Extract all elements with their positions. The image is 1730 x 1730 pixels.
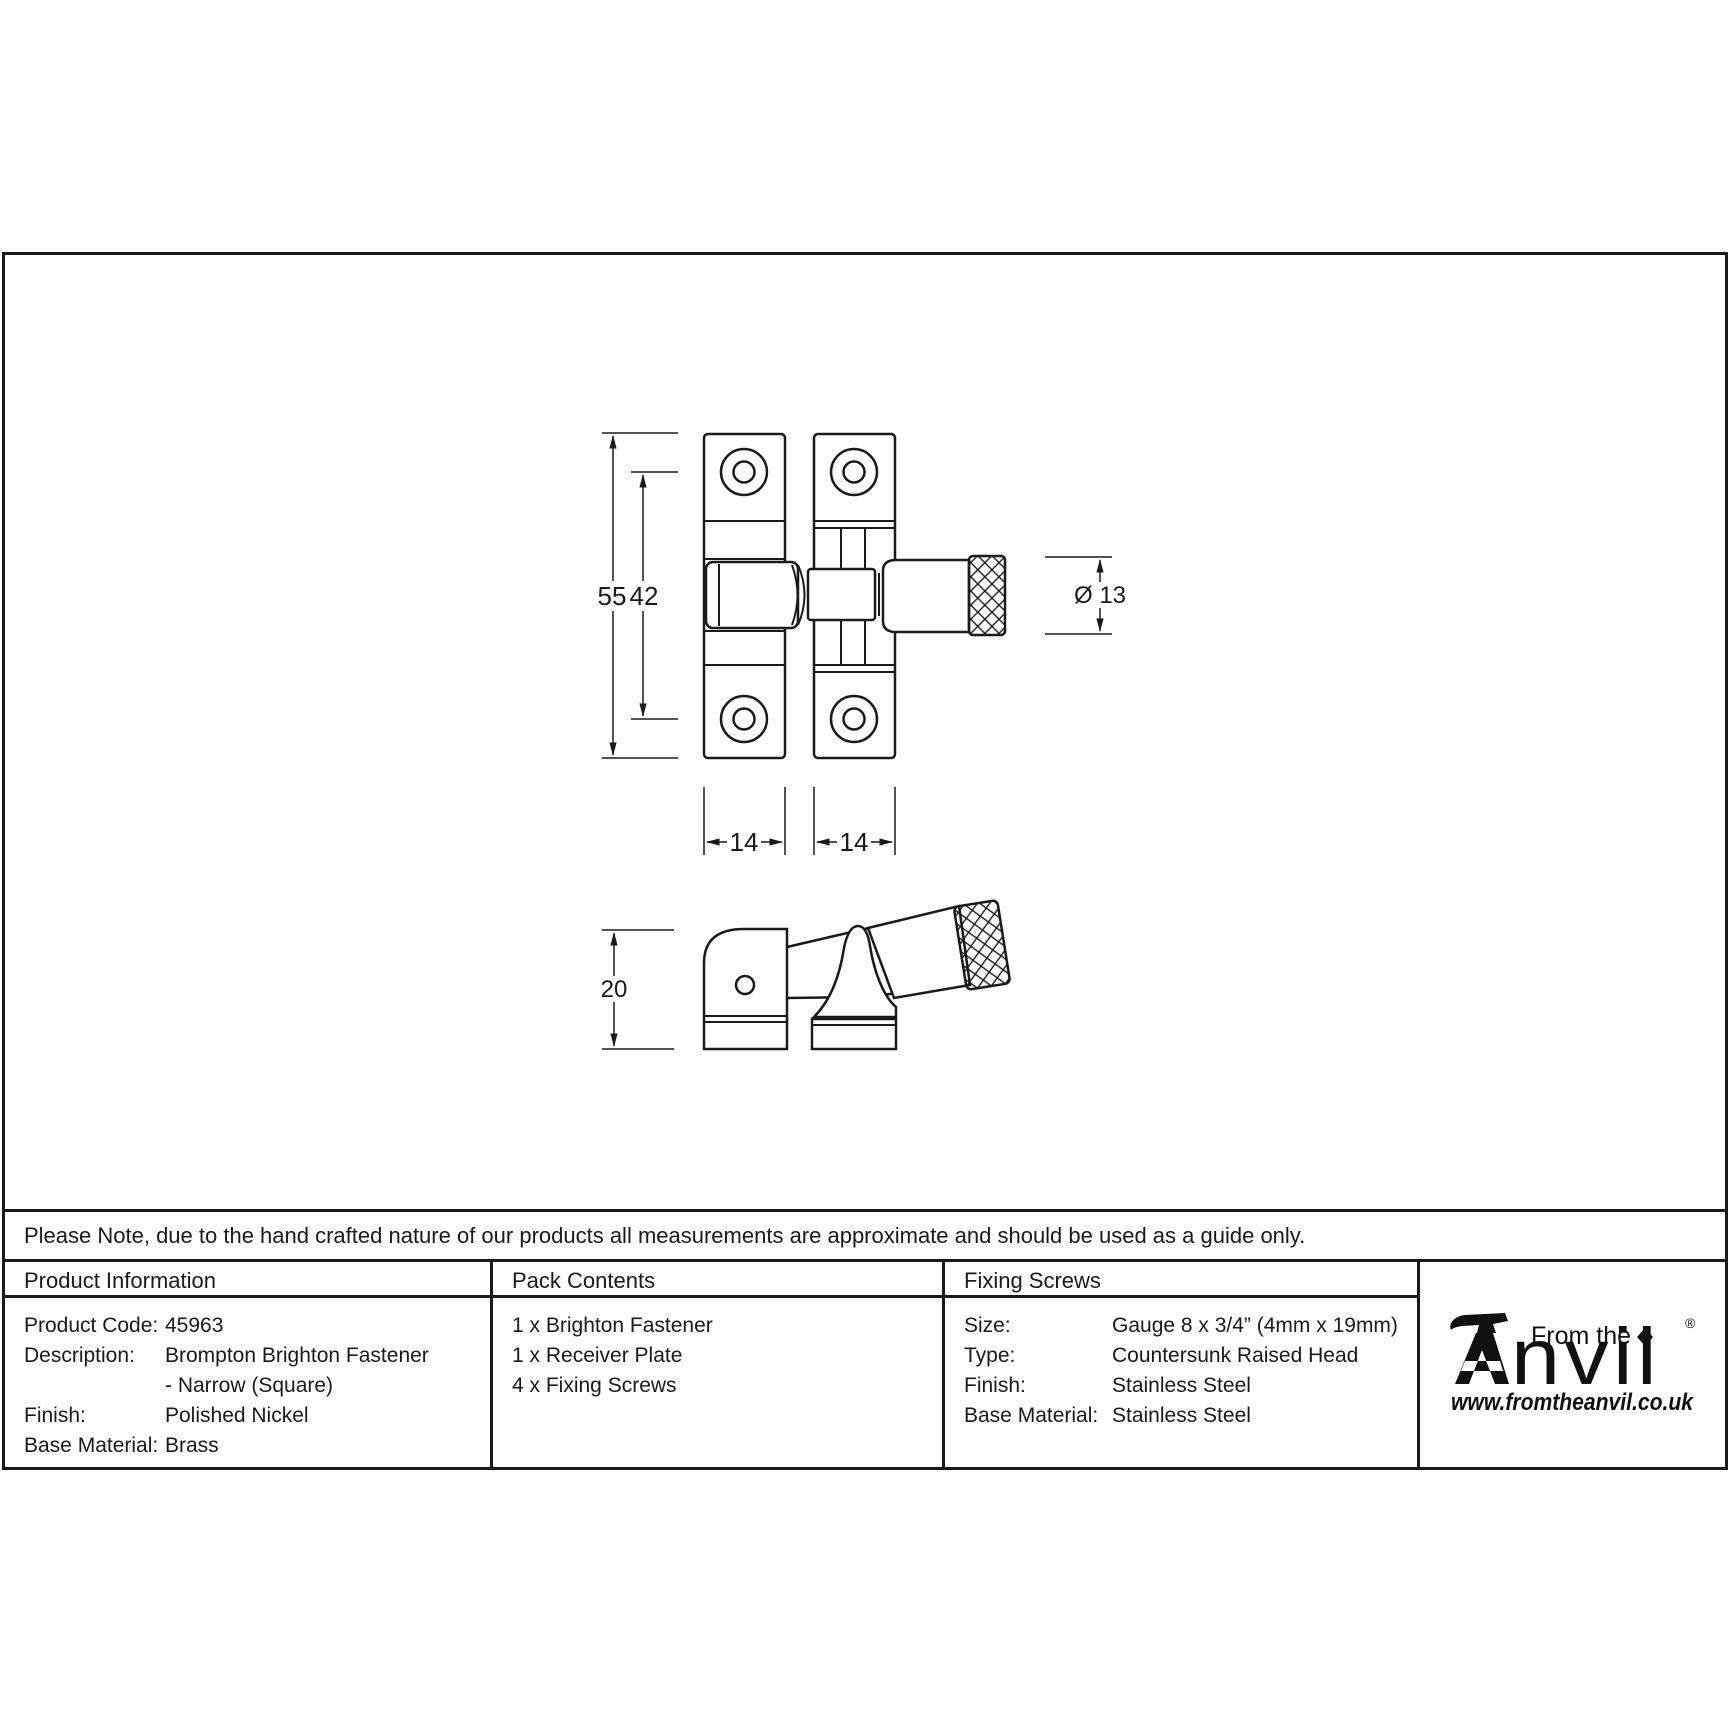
row-label: Finish: <box>964 1371 1112 1401</box>
row-label: Description: <box>24 1341 165 1371</box>
table-row: Type: Countersunk Raised Head <box>964 1341 1417 1371</box>
fixing-screws-column: Fixing Screws Size: Gauge 8 x 3/4” (4mm … <box>945 1262 1420 1467</box>
row-label: Base Material: <box>964 1401 1112 1431</box>
dim-knob-diameter: Ø 13 <box>1074 582 1126 609</box>
row-value: Polished Nickel <box>165 1401 490 1431</box>
technical-drawing-area: 55 42 14 14 Ø 13 20 <box>5 255 1725 1209</box>
slider-block <box>808 569 875 620</box>
dim-right-plate-width: 14 <box>840 827 869 857</box>
side-view <box>704 900 1010 1049</box>
dim-hole-spacing: 42 <box>630 581 659 611</box>
table-row: Base Material: Brass <box>24 1431 490 1461</box>
row-value: 45963 <box>165 1311 490 1341</box>
product-information-column: Product Information Product Code: 45963 … <box>5 1262 493 1467</box>
logo-registered-mark: ® <box>1685 1315 1696 1331</box>
pack-item: 1 x Receiver Plate <box>512 1341 942 1371</box>
pack-item: 4 x Fixing Screws <box>512 1371 942 1401</box>
row-value: Stainless Steel <box>1112 1371 1417 1401</box>
fixing-screws-header: Fixing Screws <box>945 1262 1417 1298</box>
row-value: Stainless Steel <box>1112 1401 1417 1431</box>
table-row: Product Code: 45963 <box>24 1311 490 1341</box>
row-label: Size: <box>964 1311 1112 1341</box>
row-label: Type: <box>964 1341 1112 1371</box>
measurement-note-text: Please Note, due to the hand crafted nat… <box>24 1223 1305 1249</box>
receiver-plate-side <box>704 929 787 1049</box>
row-value: Gauge 8 x 3/4” (4mm x 19mm) <box>1112 1311 1417 1341</box>
pack-item: 1 x Brighton Fastener <box>512 1311 942 1341</box>
product-information-header: Product Information <box>5 1262 490 1298</box>
dim-side-height: 20 <box>601 976 628 1003</box>
drawing-sheet-frame: 55 42 14 14 Ø 13 20 Please Note, due to … <box>2 252 1728 1470</box>
table-row: Finish: Stainless Steel <box>964 1371 1417 1401</box>
dim-total-height: 55 <box>598 581 627 611</box>
row-label <box>24 1371 165 1401</box>
from-the-anvil-logo: nvil From the ® www.fromtheanvil.co.uk <box>1443 1310 1703 1420</box>
logo-from-the-text: From the <box>1531 1322 1631 1350</box>
fastener-technical-drawing: 55 42 14 14 Ø 13 20 <box>5 255 1723 1209</box>
row-value: Brompton Brighton Fastener <box>165 1341 490 1371</box>
specification-table: Product Information Product Code: 45963 … <box>5 1259 1725 1467</box>
spec-sheet-page: 55 42 14 14 Ø 13 20 Please Note, due to … <box>0 0 1730 1730</box>
row-value: Countersunk Raised Head <box>1112 1341 1417 1371</box>
dim-left-plate-width: 14 <box>730 827 759 857</box>
table-row: Description: Brompton Brighton Fastener <box>24 1341 490 1371</box>
anvil-icon <box>1450 1313 1509 1384</box>
row-value: - Narrow (Square) <box>165 1371 490 1401</box>
row-value: Brass <box>165 1431 490 1461</box>
knurled-knob-plan <box>969 556 1005 635</box>
plan-view <box>704 434 1005 758</box>
brand-logo-cell: nvil From the ® www.fromtheanvil.co.uk <box>1420 1262 1725 1467</box>
base-block-side <box>812 1019 896 1049</box>
table-row: - Narrow (Square) <box>24 1371 490 1401</box>
table-row: Base Material: Stainless Steel <box>964 1401 1417 1431</box>
pack-contents-header: Pack Contents <box>493 1262 942 1298</box>
logo-website-url: www.fromtheanvil.co.uk <box>1451 1389 1694 1416</box>
table-row: Size: Gauge 8 x 3/4” (4mm x 19mm) <box>964 1311 1417 1341</box>
row-label: Product Code: <box>24 1311 165 1341</box>
row-label: Base Material: <box>24 1431 165 1461</box>
knob-stem-plan <box>883 560 969 632</box>
table-row: Finish: Polished Nickel <box>24 1401 490 1431</box>
row-label: Finish: <box>24 1401 165 1431</box>
pack-contents-column: Pack Contents 1 x Brighton Fastener 1 x … <box>493 1262 945 1467</box>
measurement-note-row: Please Note, due to the hand crafted nat… <box>5 1209 1725 1259</box>
